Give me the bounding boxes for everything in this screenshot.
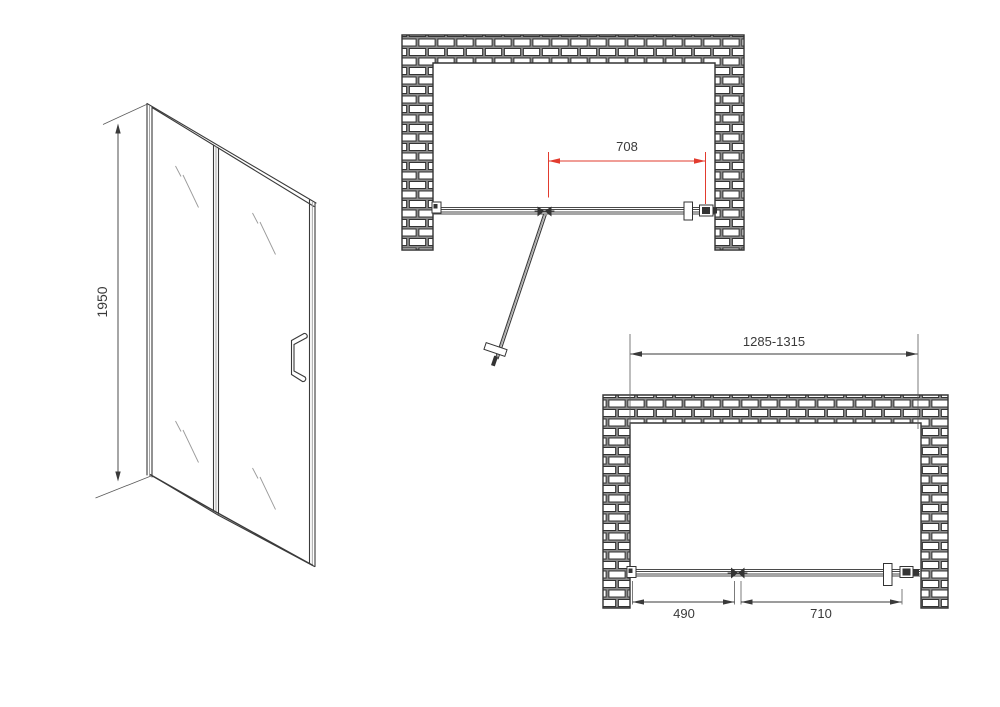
handle-plan: [684, 202, 693, 220]
glass-panel-line: [632, 570, 920, 577]
arrowhead-left: [633, 599, 645, 604]
door-panel-dimension-label: 710: [810, 606, 832, 621]
wall-bracket-left: [432, 202, 441, 213]
glass-panel-line: [433, 208, 715, 215]
arrowhead-right: [890, 599, 902, 604]
glass-reflection-marks: [176, 166, 276, 510]
handle-plan: [884, 564, 893, 586]
wall-bracket-left: [627, 567, 636, 578]
arrowhead-left: [549, 158, 561, 164]
extension-line: [96, 476, 152, 498]
shower-door-technical-drawing: 1950: [0, 0, 1000, 707]
dimension-height: 1950: [94, 104, 151, 498]
arrowhead-left: [631, 351, 643, 357]
dimension-fixed-panel: 490: [633, 581, 735, 621]
plan-view-closed: 1285-1315: [603, 334, 948, 621]
open-door-edge-cap: [491, 356, 498, 367]
door-frame: [147, 104, 316, 567]
height-dimension-label: 1950: [94, 286, 110, 317]
dimension-door-panel: 710: [741, 581, 902, 621]
arrowhead-right: [906, 351, 918, 357]
plan-view-open: 708: [402, 35, 744, 366]
arrowhead-left: [741, 599, 753, 604]
elevation-view: 1950: [94, 104, 316, 567]
fixed-panel-dimension-label: 490: [673, 606, 695, 621]
opening-width-dimension-label: 1285-1315: [743, 334, 805, 349]
door-width-dimension-label: 708: [616, 139, 638, 154]
technical-drawing-page: 1950: [0, 0, 1000, 707]
arrowhead-right: [723, 599, 735, 604]
extension-line: [103, 104, 148, 125]
dimension-door-width: 708: [549, 139, 706, 204]
arrowhead-right: [694, 158, 706, 164]
arrowhead-down: [115, 472, 120, 482]
open-door-handle: [484, 343, 507, 357]
door-open-swing: [484, 215, 546, 367]
arrowhead-up: [115, 124, 120, 134]
door-handle: [292, 333, 308, 381]
